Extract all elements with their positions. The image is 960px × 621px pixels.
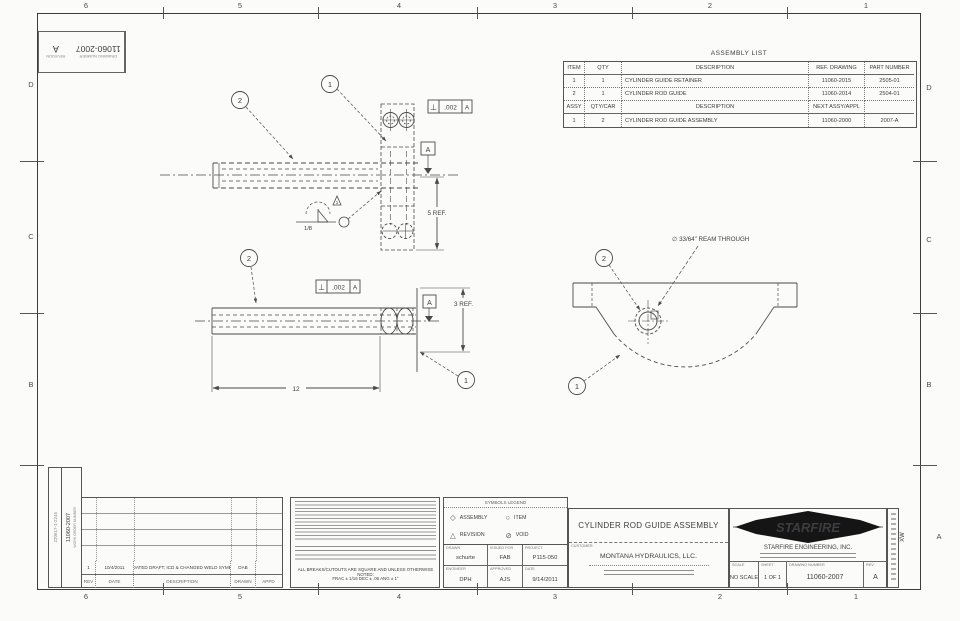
sheet-value: 1 OF 1 — [759, 568, 786, 587]
zone-left-d: D — [24, 80, 38, 90]
zone-tick — [632, 7, 633, 19]
rev-drawn: DAB — [231, 561, 256, 574]
rev-value: 1 — [82, 561, 96, 574]
revision-history: 1 10/4/2011 UPDATED DRAFT; ICD & CHANGED… — [81, 497, 283, 588]
corner-stamp-rev: A — [53, 45, 59, 55]
zone-bottom-3: 3 — [548, 592, 562, 602]
right-margin-strip — [887, 508, 899, 588]
corner-stamp-rev-cell: REVISION A — [39, 32, 73, 72]
title-customer-block: CYLINDER ROD GUIDE ASSEMBLY CUSTOMER MON… — [568, 508, 729, 588]
scale-cell: SCALE NO SCALE — [730, 561, 759, 587]
cell: 11060-2000 — [809, 114, 865, 127]
zone-right-d: D — [922, 83, 936, 93]
cell: 11060-2015 — [809, 75, 865, 88]
zone-top-3: 3 — [548, 1, 562, 11]
divider — [134, 498, 135, 561]
company-block: STARFIRE STARFIRE ENGINEERING, INC. SCAL… — [729, 508, 887, 588]
zone-bottom-4: 4 — [392, 592, 406, 602]
legend-label: VOID — [516, 532, 529, 538]
work-order-label: WORK ORDER NUMBER — [73, 507, 77, 548]
rev-cell: REV A — [864, 561, 887, 587]
rev-header: REV — [82, 575, 96, 588]
company-name: STARFIRE ENGINEERING, INC. — [730, 545, 886, 551]
assembly-diamond-icon: ◇ — [450, 513, 456, 522]
col-header: QTY — [585, 62, 622, 75]
zone-bottom-5: 5 — [233, 592, 247, 602]
symbols-legend-title: SYMBOLS LEGEND — [444, 498, 567, 508]
cell: 1 — [585, 75, 622, 88]
divider — [96, 498, 97, 561]
rev-appd — [256, 561, 281, 574]
cell: 11060-2014 — [809, 88, 865, 101]
corner-stamp-rev-label: REVISION — [46, 55, 65, 60]
col-header: NEXT ASSY/APPL — [809, 101, 865, 114]
zone-bottom-1: 1 — [849, 592, 863, 602]
col-header: REF. DRAWING — [809, 62, 865, 75]
legend-item-revision: △ REVISION — [450, 527, 506, 545]
rev-value: A — [864, 568, 887, 587]
cell: 2007-A — [865, 114, 914, 127]
assembly-list-title: ASSEMBLY LIST — [563, 50, 915, 57]
col-header: DESCRIPTION — [622, 101, 809, 114]
rev-header: DRAWN — [231, 575, 256, 588]
zone-tick — [787, 7, 788, 19]
cell: CYLINDER ROD GUIDE ASSEMBLY — [622, 114, 809, 127]
col-header: QTY/CAR — [585, 101, 622, 114]
drawing-number-value: 11060-2007 — [787, 568, 863, 587]
cell: 1 — [585, 88, 622, 101]
margin-strip-work-order: 11060-2007 WORK ORDER NUMBER — [61, 467, 82, 588]
zone-top-2: 2 — [703, 1, 717, 11]
divider — [256, 498, 257, 561]
zone-top-1: 1 — [859, 1, 873, 11]
drawing-title: CYLINDER ROD GUIDE ASSEMBLY — [569, 509, 728, 543]
legend-label: ASSEMBLY — [460, 515, 488, 521]
work-order-number: 11060-2007 — [66, 513, 72, 542]
void-circle-icon: ⊘ — [506, 531, 512, 540]
col-header: PART NUMBER — [865, 62, 914, 75]
sheet-cell: SHEET 1 OF 1 — [759, 561, 787, 587]
corner-stamp-number-label: DRAWING NUMBER — [79, 55, 117, 60]
revision-empty-rows — [82, 498, 282, 561]
legend-label: REVISION — [460, 532, 485, 538]
zone-right-c: C — [922, 235, 936, 245]
legend-label: ITEM — [514, 515, 526, 521]
signoff-value: 9/14/2011 — [523, 572, 567, 587]
legend-item-void: ⊘ VOID — [506, 527, 562, 545]
cell: 1 — [564, 114, 585, 127]
item-circle-icon: ○ — [506, 513, 511, 522]
customer-subtext — [604, 570, 694, 576]
zone-top-5: 5 — [233, 1, 247, 11]
revision-row: 1 10/4/2011 UPDATED DRAFT; ICD & CHANGED… — [82, 561, 282, 574]
zone-left-b: B — [24, 380, 38, 390]
signoff-value: FAB — [488, 551, 522, 565]
zone-bottom-6: 6 — [79, 592, 93, 602]
legend-item-item: ○ ITEM — [506, 509, 562, 527]
zone-tick — [20, 465, 44, 466]
scanned-engineering-drawing: { "sheet": { "zones_top": ["6","5","4","… — [0, 0, 960, 621]
signoff-engineer: ENGINEER DPH — [444, 566, 488, 587]
customer-name: MONTANA HYDRAULICS, LLC. — [569, 553, 728, 560]
signoff-value: P115-050 — [523, 551, 567, 565]
revision-header-row: REV DATE DESCRIPTION DRAWN APPD — [82, 574, 282, 588]
zone-top-4: 4 — [392, 1, 406, 11]
general-notes: ALL BREAKS/CUTOUTS ARE SQUARE AND UNLESS… — [290, 497, 440, 588]
zone-right-a: A — [932, 532, 946, 542]
zone-tick — [318, 7, 319, 19]
divider — [589, 565, 709, 566]
right-margin-mark: XW — [900, 532, 906, 542]
cell: CYLINDER GUIDE RETAINER — [622, 75, 809, 88]
signoff-project: PROJECT P115-050 — [523, 545, 567, 566]
corner-stamp-number-cell: DRAWING NUMBER 11060-2007 — [73, 32, 125, 72]
cell: CYLINDER ROD GUIDE — [622, 88, 809, 101]
rev-header: APPD — [256, 575, 281, 588]
margin-strip-scan-code: 220617-1-2245 — [48, 467, 62, 588]
signoff-value: AJS — [488, 572, 522, 587]
company-logo: STARFIRE — [730, 511, 886, 544]
scan-code: 220617-1-2245 — [53, 512, 58, 543]
divider — [231, 498, 232, 561]
rev-date: 10/4/2011 — [96, 561, 134, 574]
col-header: DESCRIPTION — [622, 62, 809, 75]
drawing-number-cell: DRAWING NUMBER 11060-2007 — [787, 561, 864, 587]
zone-tick — [163, 7, 164, 19]
cell: 2 — [585, 114, 622, 127]
cell: 2 — [564, 88, 585, 101]
strip-text-illegible — [891, 513, 896, 583]
col-header — [865, 101, 914, 114]
col-header: ASSY — [564, 101, 585, 114]
zone-tick — [20, 161, 44, 162]
col-header: ITEM — [564, 62, 585, 75]
corner-stamp: DRAWING NUMBER 11060-2007 REVISION A — [38, 31, 126, 73]
customer-label: CUSTOMER — [569, 543, 728, 549]
zone-tick — [20, 313, 44, 314]
cell: 2504-01 — [865, 88, 914, 101]
notes-paragraph-2 — [295, 546, 436, 563]
corner-stamp-number: 11060-2007 — [76, 45, 121, 55]
signoff-drawn: DRAWN schurte — [444, 545, 488, 566]
signoff-block: DRAWN schurte ISSUED FOR FAB PROJECT P11… — [443, 544, 568, 588]
scale-value: NO SCALE — [730, 568, 758, 587]
signoff-issued: ISSUED FOR FAB — [488, 545, 523, 566]
signoff-value: DPH — [444, 572, 487, 587]
cell: 1 — [564, 75, 585, 88]
signoff-approved: APPROVED AJS — [488, 566, 523, 587]
notes-paragraph — [295, 501, 436, 542]
zone-right-b: B — [922, 380, 936, 390]
signoff-date: DATE 9/14/2011 — [523, 566, 567, 587]
notes-footer-2: FRAC ± 1/16 DEC ± .06 ANG ± 1° — [291, 576, 440, 581]
assembly-list-table: ITEM QTY DESCRIPTION REF. DRAWING PART N… — [563, 61, 917, 128]
zone-tick — [913, 161, 937, 162]
zone-tick — [477, 7, 478, 19]
zone-bottom-2: 2 — [713, 592, 727, 602]
symbols-legend-items: ◇ ASSEMBLY ○ ITEM △ REVISION ⊘ VOID — [444, 508, 567, 545]
title-block-bottom-row: SCALE NO SCALE SHEET 1 OF 1 DRAWING NUMB… — [730, 561, 887, 587]
rev-description: UPDATED DRAFT; ICD & CHANGED WELD SYMBOL — [134, 561, 231, 574]
symbols-legend: SYMBOLS LEGEND ◇ ASSEMBLY ○ ITEM △ REVIS… — [443, 497, 568, 545]
logo-text: STARFIRE — [776, 520, 840, 535]
zone-left-c: C — [24, 232, 38, 242]
cell: 2505-01 — [865, 75, 914, 88]
rev-header: DATE — [96, 575, 134, 588]
signoff-value: schurte — [444, 551, 487, 565]
zone-tick — [913, 465, 937, 466]
starfire-logo: STARFIRE — [733, 511, 883, 544]
rev-header: DESCRIPTION — [134, 575, 231, 588]
zone-tick — [913, 313, 937, 314]
company-address — [760, 553, 856, 561]
zone-top-6: 6 — [79, 1, 93, 11]
revision-triangle-icon: △ — [450, 531, 456, 540]
legend-item-assembly: ◇ ASSEMBLY — [450, 509, 506, 527]
